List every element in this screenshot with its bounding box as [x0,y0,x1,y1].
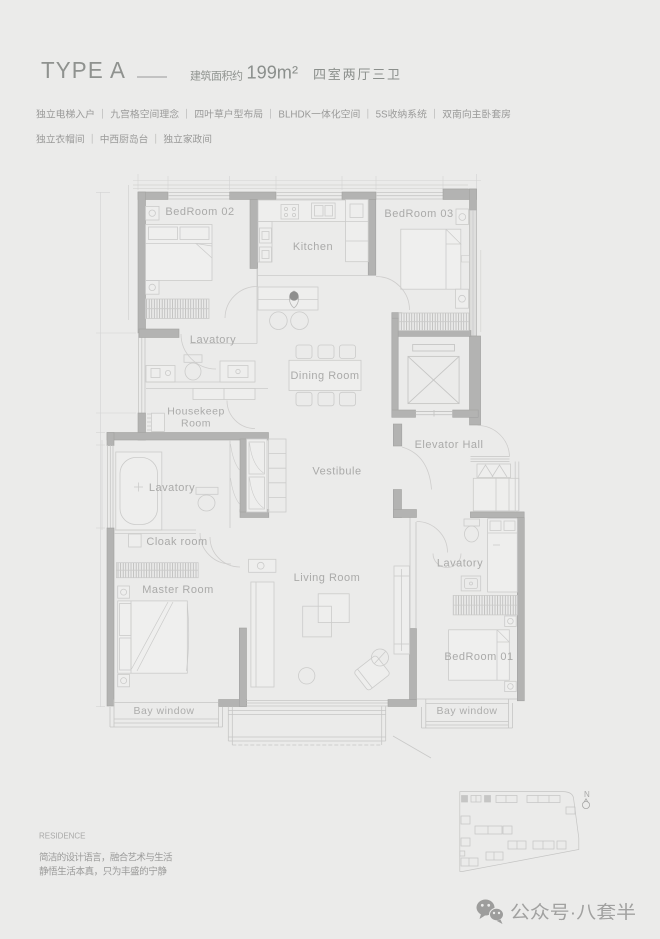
svg-text:Master Room: Master Room [142,584,214,596]
svg-text:RESIDENCE: RESIDENCE [39,831,86,841]
svg-text:Elevator Hall: Elevator Hall [415,439,484,451]
svg-text:TYPE A: TYPE A [41,57,126,83]
svg-text:独立衣帽间 ｜ 中西厨岛台 ｜ 独立家政间: 独立衣帽间 ｜ 中西厨岛台 ｜ 独立家政间 [36,133,212,146]
svg-text:199m²: 199m² [247,63,299,83]
svg-text:Dining Room: Dining Room [290,370,359,382]
svg-text:BedRoom 01: BedRoom 01 [444,651,513,663]
svg-text:Vestibule: Vestibule [312,466,361,478]
svg-text:简洁的设计语言，融合艺术与生活: 简洁的设计语言，融合艺术与生活 [39,852,173,864]
svg-text:Bay window: Bay window [133,705,194,717]
svg-text:建筑面积约: 建筑面积约 [190,69,243,83]
svg-text:静悟生活本真，只为丰盛的宁静: 静悟生活本真，只为丰盛的宁静 [39,866,167,878]
svg-text:Housekeep: Housekeep [167,406,225,418]
svg-text:Lavatory: Lavatory [149,482,195,494]
svg-text:Cloak room: Cloak room [146,536,207,548]
svg-text:独立电梯入户 ｜ 九宫格空间理念 ｜ 四叶草户型布局 ｜ B: 独立电梯入户 ｜ 九宫格空间理念 ｜ 四叶草户型布局 ｜ BLHDK一体化空间 … [36,108,511,121]
svg-text:公众号·八套半: 公众号·八套半 [510,903,636,923]
svg-text:Lavatory: Lavatory [437,558,483,570]
svg-text:Kitchen: Kitchen [293,241,333,253]
svg-text:Living Room: Living Room [294,572,361,584]
svg-text:Lavatory: Lavatory [190,334,236,346]
svg-text:BedRoom 03: BedRoom 03 [384,208,453,220]
svg-text:Bay window: Bay window [436,705,497,717]
svg-text:Room: Room [181,418,211,430]
svg-text:N: N [584,790,590,799]
svg-text:BedRoom 02: BedRoom 02 [165,206,234,218]
